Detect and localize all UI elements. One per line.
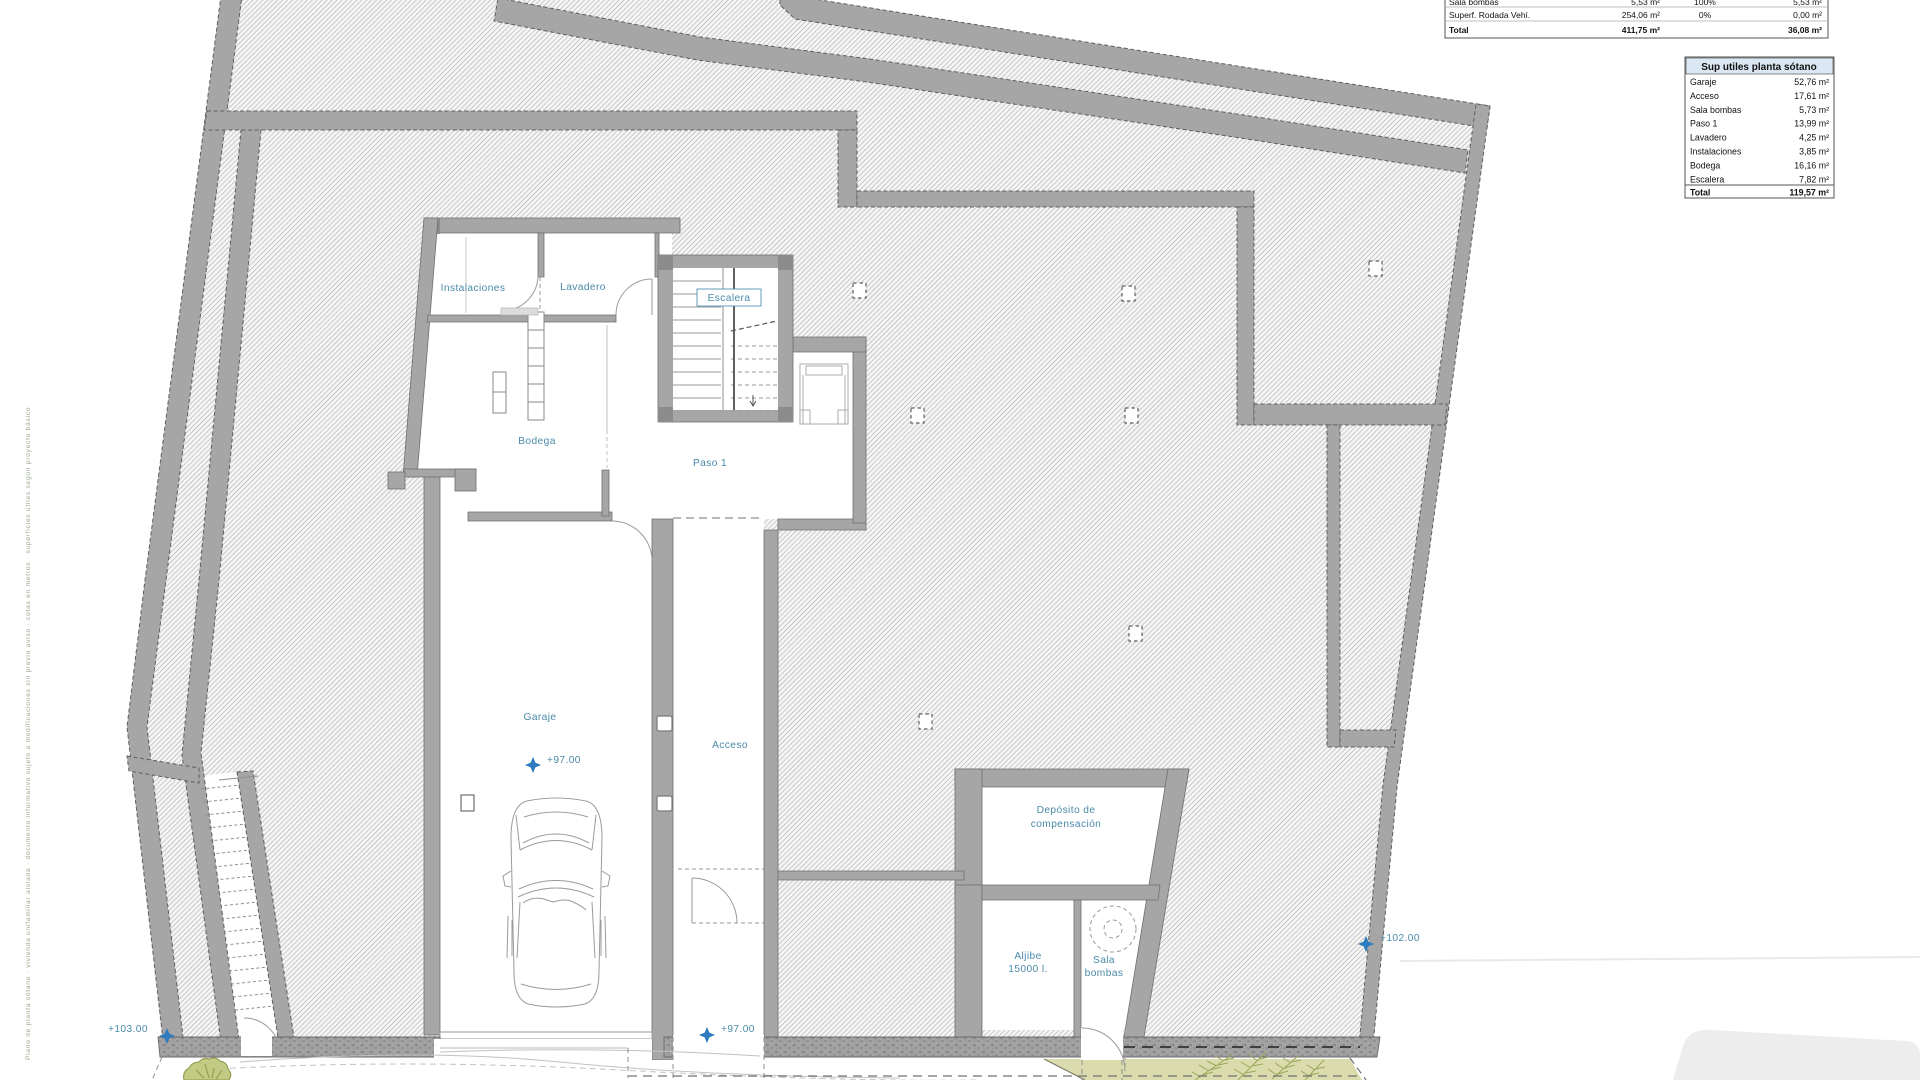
svg-text:Garaje: Garaje	[1690, 77, 1717, 87]
svg-text:Escalera: Escalera	[708, 293, 751, 304]
svg-text:Bodega: Bodega	[1690, 160, 1720, 170]
svg-text:Total: Total	[1690, 188, 1710, 198]
svg-text:119,57 m²: 119,57 m²	[1789, 188, 1829, 198]
svg-text:Escalera: Escalera	[1690, 174, 1724, 184]
svg-text:Total: Total	[1449, 25, 1469, 35]
svg-text:+102.00: +102.00	[1380, 933, 1420, 944]
svg-text:Plano de planta sótano · vivie: Plano de planta sótano · vivienda unifam…	[25, 407, 32, 1060]
svg-text:+97.00: +97.00	[547, 755, 581, 766]
svg-text:Garaje: Garaje	[524, 712, 557, 723]
svg-text:compensación: compensación	[1031, 819, 1102, 830]
svg-text:17,61 m²: 17,61 m²	[1794, 91, 1829, 101]
svg-text:Instalaciones: Instalaciones	[1690, 147, 1742, 157]
svg-text:Acceso: Acceso	[1690, 91, 1719, 101]
svg-text:4,25 m²: 4,25 m²	[1799, 133, 1829, 143]
svg-text:13,99 m²: 13,99 m²	[1794, 119, 1829, 129]
svg-text:Paso 1: Paso 1	[693, 458, 727, 469]
svg-text:Sala bombas: Sala bombas	[1449, 0, 1499, 7]
svg-text:bombas: bombas	[1085, 968, 1124, 979]
svg-text:+103.00: +103.00	[108, 1024, 148, 1035]
svg-text:254,06 m²: 254,06 m²	[1622, 10, 1660, 20]
svg-text:0,00 m²: 0,00 m²	[1793, 10, 1822, 20]
svg-text:Sala bombas: Sala bombas	[1690, 105, 1742, 115]
svg-text:411,75 m²: 411,75 m²	[1622, 25, 1660, 35]
svg-text:0%: 0%	[1699, 10, 1712, 20]
svg-text:Sup utiles planta sótano: Sup utiles planta sótano	[1701, 62, 1817, 73]
svg-text:Superf. Rodada Vehí.: Superf. Rodada Vehí.	[1449, 10, 1530, 20]
svg-text:5,53 m²: 5,53 m²	[1631, 0, 1660, 7]
svg-text:15000 l.: 15000 l.	[1008, 964, 1047, 975]
svg-text:16,16 m²: 16,16 m²	[1794, 160, 1829, 170]
svg-text:5,73 m²: 5,73 m²	[1799, 105, 1829, 115]
svg-text:Bodega: Bodega	[518, 436, 556, 447]
svg-text:5,53 m²: 5,53 m²	[1793, 0, 1822, 7]
svg-text:3,85 m²: 3,85 m²	[1799, 147, 1829, 157]
svg-text:Acceso: Acceso	[712, 740, 748, 751]
svg-text:7,82 m²: 7,82 m²	[1799, 174, 1829, 184]
svg-text:36,08 m²: 36,08 m²	[1788, 25, 1822, 35]
svg-text:Instalaciones: Instalaciones	[441, 283, 506, 294]
svg-text:Depósito de: Depósito de	[1037, 805, 1096, 816]
svg-text:100%: 100%	[1694, 0, 1716, 7]
svg-text:+97.00: +97.00	[721, 1024, 755, 1035]
svg-text:52,76 m²: 52,76 m²	[1794, 77, 1829, 87]
svg-text:Aljibe: Aljibe	[1014, 951, 1041, 962]
svg-text:Paso 1: Paso 1	[1690, 119, 1717, 129]
svg-text:Lavadero: Lavadero	[560, 282, 606, 293]
svg-text:Lavadero: Lavadero	[1690, 133, 1727, 143]
svg-text:Sala: Sala	[1093, 955, 1115, 966]
